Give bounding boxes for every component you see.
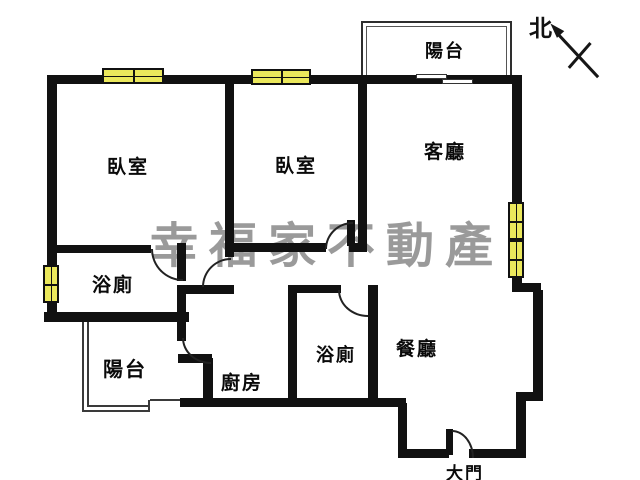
wall-right-lower (533, 290, 543, 397)
bottom-balcony-railing (82, 410, 150, 412)
bottom-balcony-railing (148, 400, 150, 412)
floor-plan: 幸福家不動產 北 陽台 (0, 0, 640, 480)
wall-entry-left (398, 403, 407, 453)
wall-bathroom-left-bottom (44, 312, 189, 322)
sliding-door-pane (442, 79, 473, 84)
room-label-living-room: 客廳 (424, 137, 466, 164)
bottom-balcony-railing (87, 405, 150, 407)
door-arc-bathroom-left (151, 249, 183, 281)
wall-bedroom-middle-bottom (225, 243, 326, 252)
wall-kitchen-left-upper (177, 285, 186, 341)
room-label-dining-room: 餐廳 (396, 334, 438, 361)
room-label-bedroom-left: 臥室 (107, 152, 149, 179)
bottom-balcony-railing (87, 322, 89, 407)
bottom-balcony-railing (82, 322, 84, 412)
window-bedroom-left (102, 68, 164, 84)
window-livingroom-upper (508, 202, 524, 240)
wall-bedroom-left-bottom (47, 245, 151, 253)
wall-kitchen-left-lower (203, 358, 213, 403)
bottom-balcony-railing (150, 399, 180, 401)
wall-bathroom-right-top (288, 285, 341, 293)
window-livingroom-lower (508, 240, 524, 278)
room-label-balcony-bottom: 陽台 (103, 353, 147, 382)
wall-bathroom-right-right (368, 285, 378, 403)
north-label: 北 (529, 9, 552, 43)
room-label-main-door: 大門 (446, 459, 484, 480)
wall-bottom-left-of-door (398, 449, 449, 458)
wall-bedroom-divider (225, 84, 234, 257)
door-arc-main-door (452, 430, 474, 458)
wall-livingroom-divider (358, 84, 367, 252)
wall-bathroom-right-left (288, 285, 297, 403)
room-label-bedroom-middle: 臥室 (275, 151, 317, 178)
door-arc-bathroom-right (338, 290, 368, 317)
room-label-balcony-top: 陽台 (425, 37, 465, 63)
room-label-kitchen: 廚房 (221, 368, 263, 395)
room-label-bathroom-left: 浴廁 (92, 270, 134, 297)
window-bedroom-middle (251, 69, 311, 85)
room-label-bathroom-right: 浴廁 (316, 341, 356, 367)
window-bathroom-left (43, 265, 59, 303)
wall-entry-right (516, 398, 526, 453)
